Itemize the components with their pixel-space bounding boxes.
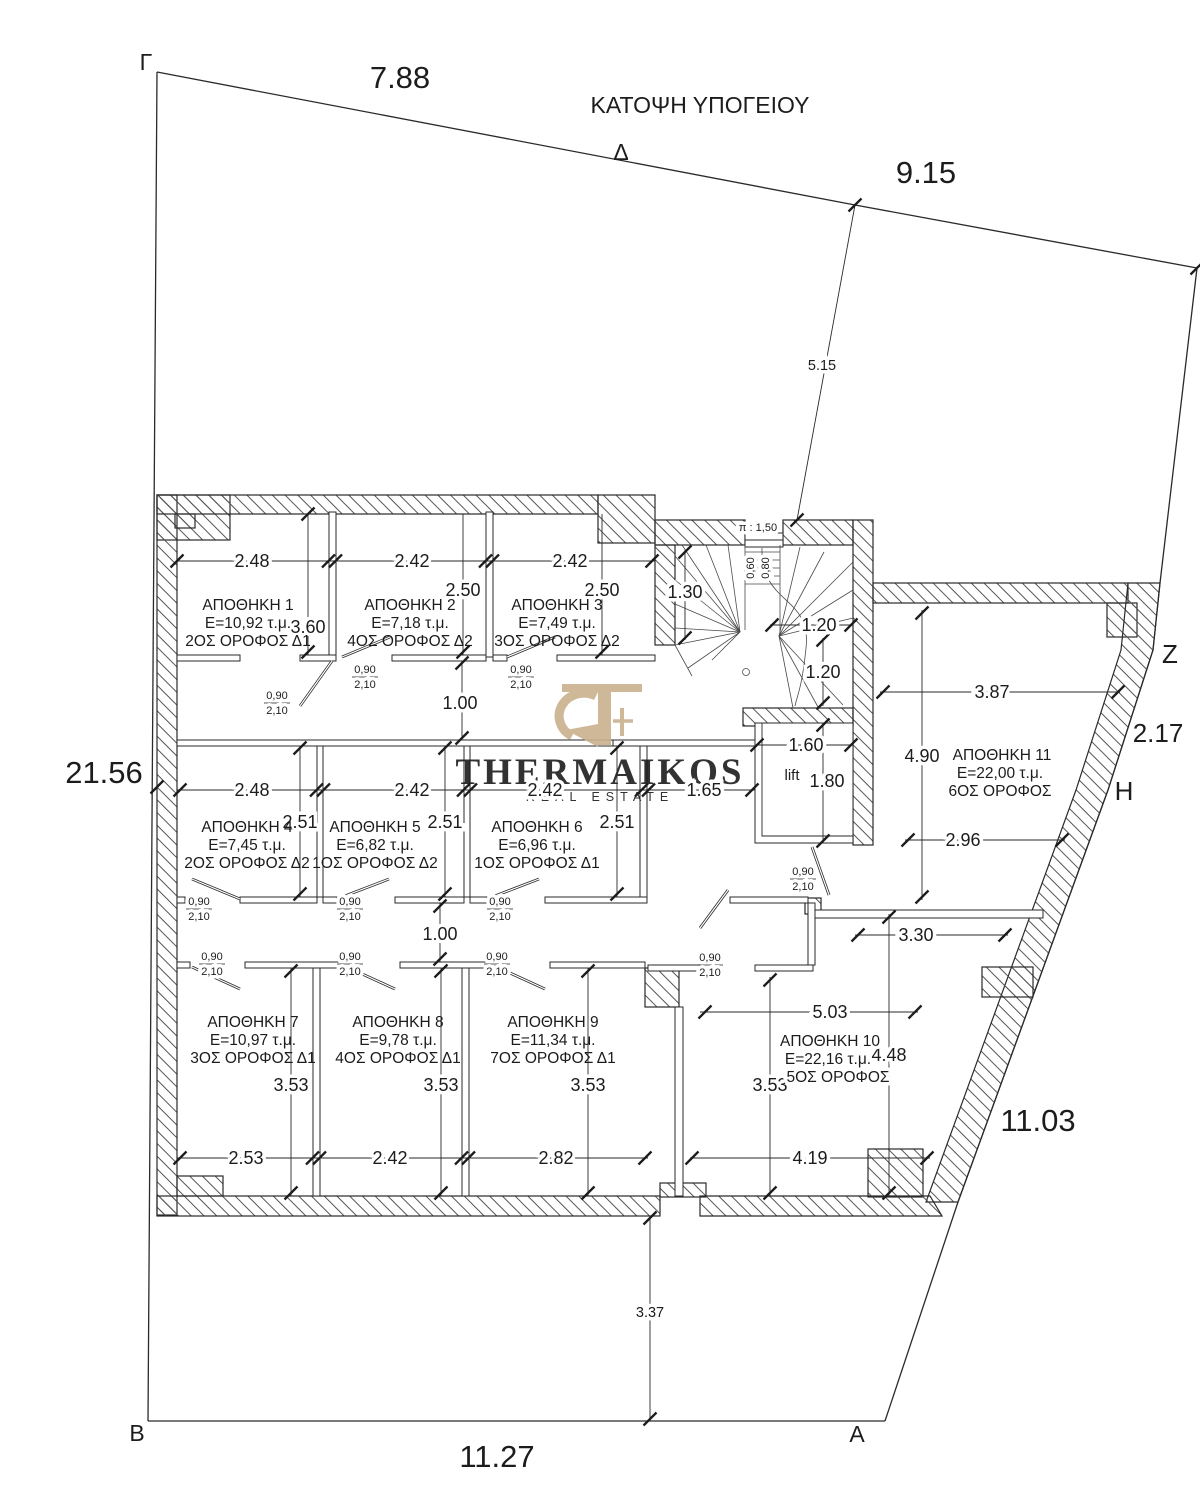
plot-dim-top-right: 9.15 <box>896 155 956 190</box>
dim-room6-width: 2.42 <box>527 780 562 800</box>
svg-text:0,90: 0,90 <box>339 951 360 963</box>
dim-room11-width: 3.87 <box>974 682 1009 702</box>
svg-text:0,90: 0,90 <box>486 951 507 963</box>
dim-room6-height: 2.51 <box>599 812 634 832</box>
room4-label: ΑΠΟΘΗΚΗ 4Ε=7,45 τ.μ.2ΟΣ ΟΡΟΦΟΣ Δ2 <box>184 819 309 872</box>
stair-pitch-label: π : 1,50 <box>739 522 777 534</box>
door-label-room2: 0,902,10 <box>352 664 378 691</box>
vertex-zeta: Z <box>1162 639 1178 669</box>
dim-room10-top: 5.03 <box>812 1002 847 1022</box>
svg-text:0,90: 0,90 <box>354 664 375 676</box>
svg-text:5ΟΣ ΟΡΟΦΟΣ: 5ΟΣ ΟΡΟΦΟΣ <box>786 1069 889 1086</box>
drawing-title: ΚΑΤΟΨΗ ΥΠΟΓΕΙΟΥ <box>590 92 809 118</box>
svg-text:ΑΠΟΘΗΚΗ 9: ΑΠΟΘΗΚΗ 9 <box>507 1014 598 1031</box>
svg-text:0,90: 0,90 <box>188 896 209 908</box>
plot-dim-bottom: 11.27 <box>459 1439 534 1474</box>
logo-emblem <box>559 684 642 747</box>
svg-text:6ΟΣ ΟΡΟΦΟΣ: 6ΟΣ ΟΡΟΦΟΣ <box>948 783 1051 800</box>
lift-label: lift <box>785 767 801 784</box>
dim-stair-a: 1.20 <box>801 615 836 635</box>
door-room10 <box>700 890 728 928</box>
svg-text:3ΟΣ ΟΡΟΦΟΣ Δ2: 3ΟΣ ΟΡΟΦΟΣ Δ2 <box>494 633 619 650</box>
room7-label: ΑΠΟΘΗΚΗ 7Ε=10,97 τ.μ.3ΟΣ ΟΡΟΦΟΣ Δ1 <box>190 1014 315 1067</box>
svg-text:Ε=6,96 τ.μ.: Ε=6,96 τ.μ. <box>498 837 576 854</box>
dim-room8-width: 2.42 <box>372 1148 407 1168</box>
door-lift-lobby <box>812 847 829 895</box>
svg-text:ΑΠΟΘΗΚΗ 2: ΑΠΟΘΗΚΗ 2 <box>364 597 455 614</box>
dim-room2-width: 2.42 <box>394 551 429 571</box>
room11-label: ΑΠΟΘΗΚΗ 11Ε=22,00 τ.μ.6ΟΣ ΟΡΟΦΟΣ <box>948 747 1051 800</box>
svg-text:2,10: 2,10 <box>510 679 531 691</box>
svg-text:2,10: 2,10 <box>266 705 287 717</box>
svg-text:0,90: 0,90 <box>489 896 510 908</box>
vertex-eta: H <box>1115 776 1134 806</box>
dim-room5-width: 2.42 <box>394 780 429 800</box>
svg-text:2,10: 2,10 <box>354 679 375 691</box>
svg-text:2ΟΣ ΟΡΟΦΟΣ Δ2: 2ΟΣ ΟΡΟΦΟΣ Δ2 <box>184 855 309 872</box>
svg-text:0,90: 0,90 <box>266 690 287 702</box>
dim-setback-top: 5.15 <box>808 358 836 374</box>
room3-label: ΑΠΟΘΗΚΗ 3Ε=7,49 τ.μ.3ΟΣ ΟΡΟΦΟΣ Δ2 <box>494 597 619 650</box>
svg-text:ΑΠΟΘΗΚΗ 4: ΑΠΟΘΗΚΗ 4 <box>201 819 293 836</box>
svg-text:ΑΠΟΘΗΚΗ 8: ΑΠΟΘΗΚΗ 8 <box>352 1014 443 1031</box>
svg-text:Ε=7,18 τ.μ.: Ε=7,18 τ.μ. <box>371 615 449 632</box>
svg-text:1ΟΣ ΟΡΟΦΟΣ Δ1: 1ΟΣ ΟΡΟΦΟΣ Δ1 <box>474 855 599 872</box>
room6-label: ΑΠΟΘΗΚΗ 6Ε=6,96 τ.μ.1ΟΣ ΟΡΟΦΟΣ Δ1 <box>474 819 599 872</box>
svg-text:ΑΠΟΘΗΚΗ 1: ΑΠΟΘΗΚΗ 1 <box>202 597 293 614</box>
plot-dim-right-lower: 11.03 <box>1000 1103 1075 1138</box>
svg-text:ΑΠΟΘΗΚΗ 6: ΑΠΟΘΗΚΗ 6 <box>491 819 582 836</box>
stair-tread-b: 0,80 <box>760 557 772 578</box>
dim-room3-width: 2.42 <box>552 551 587 571</box>
dim-room9-width: 2.82 <box>538 1148 573 1168</box>
vertex-delta: Δ <box>613 139 628 165</box>
svg-text:0,90: 0,90 <box>201 951 222 963</box>
dim-room10-width: 4.19 <box>792 1148 827 1168</box>
dim-room11-height: 4.90 <box>904 746 939 766</box>
plot-dim-left: 21.56 <box>65 755 143 790</box>
room5-label: ΑΠΟΘΗΚΗ 5Ε=6,82 τ.μ.1ΟΣ ΟΡΟΦΟΣ Δ2 <box>312 819 437 872</box>
dim-room4-width: 2.48 <box>234 780 269 800</box>
svg-text:2,10: 2,10 <box>489 911 510 923</box>
svg-text:Ε=7,49 τ.μ.: Ε=7,49 τ.μ. <box>518 615 596 632</box>
door-label-lift: 0,902,10 <box>790 866 816 893</box>
svg-text:ΑΠΟΘΗΚΗ 5: ΑΠΟΘΗΚΗ 5 <box>329 819 420 836</box>
dim-room7-width: 2.53 <box>228 1148 263 1168</box>
dim-room5-height: 2.51 <box>427 812 462 832</box>
svg-text:Ε=22,16 τ.μ.: Ε=22,16 τ.μ. <box>785 1051 871 1068</box>
door-label-room1: 0,902,10 <box>264 690 290 717</box>
dim-room8-height: 3.53 <box>423 1075 458 1095</box>
door-label-room3: 0,902,10 <box>508 664 534 691</box>
vertex-beta: B <box>129 1420 144 1446</box>
dim-room1-width: 2.48 <box>234 551 269 571</box>
floor-plan-canvas: THERMAIKOS REAL ESTATE <box>0 0 1200 1489</box>
dim-lift-height: 1.80 <box>809 771 844 791</box>
svg-text:2,10: 2,10 <box>792 881 813 893</box>
door-room1 <box>300 661 332 706</box>
svg-text:ΑΠΟΘΗΚΗ 10: ΑΠΟΘΗΚΗ 10 <box>780 1033 880 1050</box>
room9-label: ΑΠΟΘΗΚΗ 9Ε=11,34 τ.μ.7ΟΣ ΟΡΟΦΟΣ Δ1 <box>490 1014 615 1067</box>
svg-text:4ΟΣ ΟΡΟΦΟΣ Δ2: 4ΟΣ ΟΡΟΦΟΣ Δ2 <box>347 633 472 650</box>
door-label-room6: 0,902,10 <box>487 896 513 923</box>
vertex-alpha: A <box>849 1421 865 1447</box>
svg-text:ΑΠΟΘΗΚΗ 7: ΑΠΟΘΗΚΗ 7 <box>207 1014 298 1031</box>
svg-text:Ε=11,34 τ.μ.: Ε=11,34 τ.μ. <box>510 1032 595 1049</box>
dim-corridor-2: 1.00 <box>422 924 457 944</box>
svg-text:Ε=10,97 τ.μ.: Ε=10,97 τ.μ. <box>210 1032 296 1049</box>
room2-label: ΑΠΟΘΗΚΗ 2Ε=7,18 τ.μ.4ΟΣ ΟΡΟΦΟΣ Δ2 <box>347 597 472 650</box>
dim-stair-b: 1.20 <box>805 662 840 682</box>
svg-text:Ε=9,78 τ.μ.: Ε=9,78 τ.μ. <box>359 1032 437 1049</box>
svg-text:Ε=7,45 τ.μ.: Ε=7,45 τ.μ. <box>208 837 286 854</box>
dim-lift-width: 1.60 <box>788 735 823 755</box>
dim-room10-height-left: 3.53 <box>752 1075 787 1095</box>
svg-text:ΑΠΟΘΗΚΗ 11: ΑΠΟΘΗΚΗ 11 <box>953 747 1052 764</box>
svg-text:2,10: 2,10 <box>188 911 209 923</box>
svg-text:Ε=6,82 τ.μ.: Ε=6,82 τ.μ. <box>336 837 414 854</box>
door-label-room10: 0,902,10 <box>697 952 723 979</box>
svg-text:Ε=22,00 τ.μ.: Ε=22,00 τ.μ. <box>957 765 1043 782</box>
floor-plan-page: THERMAIKOS REAL ESTATE <box>0 0 1200 1489</box>
svg-text:2,10: 2,10 <box>486 966 507 978</box>
dim-corridor-lift: 1.65 <box>686 780 721 800</box>
svg-text:Ε=10,92 τ.μ.: Ε=10,92 τ.μ. <box>205 615 291 632</box>
dim-setback-bottom: 3.37 <box>636 1305 664 1321</box>
plot-dim-top-left: 7.88 <box>370 60 430 95</box>
door-label-room5: 0,902,10 <box>337 896 363 923</box>
svg-text:2,10: 2,10 <box>339 911 360 923</box>
vertex-gamma: Γ <box>140 49 153 75</box>
svg-text:0,90: 0,90 <box>699 952 720 964</box>
svg-text:0,90: 0,90 <box>339 896 360 908</box>
svg-text:0,90: 0,90 <box>510 664 531 676</box>
svg-text:ΑΠΟΘΗΚΗ 3: ΑΠΟΘΗΚΗ 3 <box>511 597 602 614</box>
svg-text:1ΟΣ ΟΡΟΦΟΣ Δ2: 1ΟΣ ΟΡΟΦΟΣ Δ2 <box>312 855 437 872</box>
stair-tread-a: 0,60 <box>745 557 757 578</box>
dim-room7-height: 3.53 <box>273 1075 308 1095</box>
door-label-room4: 0,902,10 <box>186 896 212 923</box>
dim-room9-height: 3.53 <box>570 1075 605 1095</box>
svg-text:2ΟΣ ΟΡΟΦΟΣ Δ1: 2ΟΣ ΟΡΟΦΟΣ Δ1 <box>185 633 310 650</box>
plot-dim-right-upper: 2.17 <box>1133 718 1184 748</box>
svg-text:3ΟΣ ΟΡΟΦΟΣ Δ1: 3ΟΣ ΟΡΟΦΟΣ Δ1 <box>190 1050 315 1067</box>
svg-text:2,10: 2,10 <box>339 966 360 978</box>
svg-text:2,10: 2,10 <box>201 966 222 978</box>
dim-room11-bottom: 2.96 <box>945 830 980 850</box>
room8-label: ΑΠΟΘΗΚΗ 8Ε=9,78 τ.μ.4ΟΣ ΟΡΟΦΟΣ Δ1 <box>335 1014 460 1067</box>
dim-stair-width: 1.30 <box>667 582 702 602</box>
dim-room10-top2: 3.30 <box>898 925 933 945</box>
svg-text:4ΟΣ ΟΡΟΦΟΣ Δ1: 4ΟΣ ΟΡΟΦΟΣ Δ1 <box>335 1050 460 1067</box>
door-label-room7: 0,902,10 <box>199 951 225 978</box>
svg-text:7ΟΣ ΟΡΟΦΟΣ Δ1: 7ΟΣ ΟΡΟΦΟΣ Δ1 <box>490 1050 615 1067</box>
svg-text:2,10: 2,10 <box>699 967 720 979</box>
svg-text:0,90: 0,90 <box>792 866 813 878</box>
dim-corridor-1: 1.00 <box>442 693 477 713</box>
